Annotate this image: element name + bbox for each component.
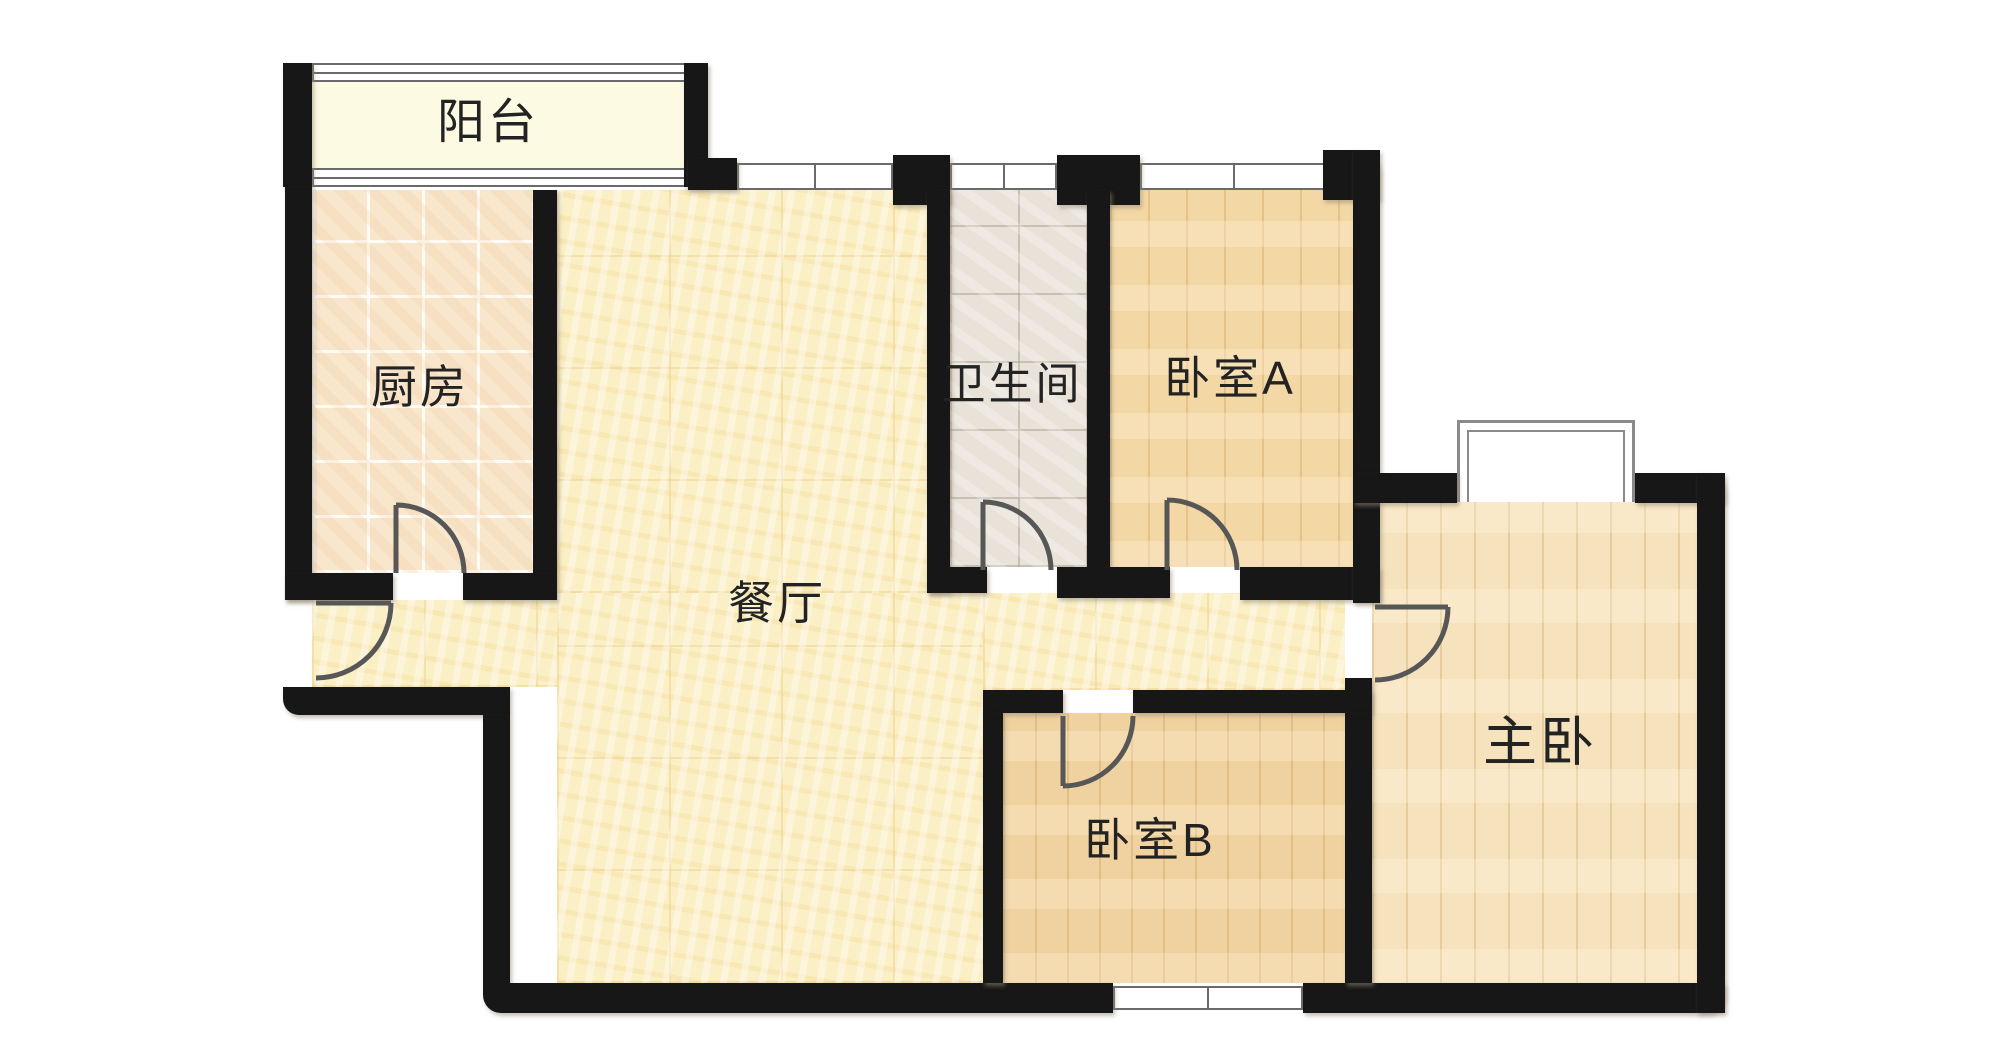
room-label-master-bedroom: 主卧 bbox=[1483, 698, 1597, 777]
door-kitchen-door bbox=[396, 505, 464, 573]
door-bathroom-door bbox=[983, 502, 1051, 570]
room-label-kitchen: 厨房 bbox=[371, 351, 469, 417]
doors-layer bbox=[0, 0, 2006, 1056]
door-bedroom-b-door bbox=[1063, 716, 1133, 786]
room-label-bedroom-b: 卧室B bbox=[1084, 804, 1216, 870]
room-label-bathroom: 卫生间 bbox=[942, 348, 1083, 412]
room-label-bedroom-a: 卧室A bbox=[1164, 342, 1296, 408]
door-master-bedroom-door bbox=[1375, 607, 1448, 680]
door-bedroom-a-door bbox=[1167, 500, 1237, 570]
room-label-balcony: 阳台 bbox=[437, 82, 539, 152]
door-entry-door bbox=[316, 603, 391, 678]
room-label-dining: 餐厅 bbox=[728, 567, 826, 633]
floor-plan: 阳台厨房餐厅卫生间卧室A卧室B主卧 bbox=[0, 0, 2006, 1056]
